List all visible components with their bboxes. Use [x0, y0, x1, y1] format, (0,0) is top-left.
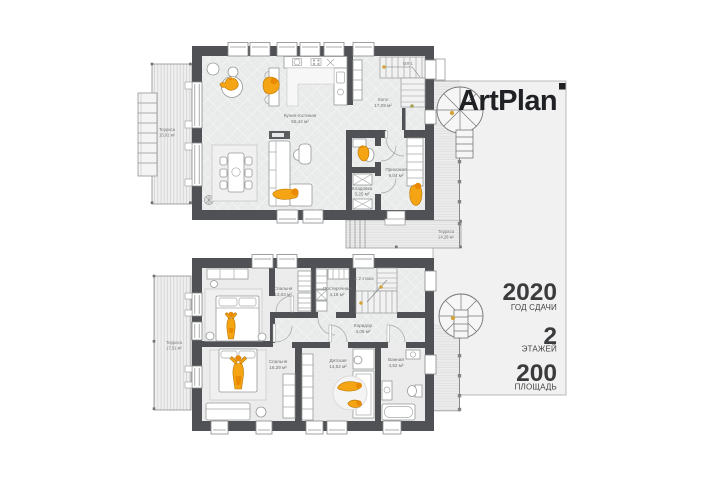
svg-text:ПЛОЩАДЬ: ПЛОЩАДЬ: [515, 383, 557, 392]
svg-text:15,91 м²: 15,91 м²: [159, 133, 176, 138]
svg-text:4,18 м²: 4,18 м²: [330, 292, 345, 297]
svg-text:Кладовка: Кладовка: [352, 186, 373, 191]
svg-text:14,52 м²: 14,52 м²: [329, 364, 347, 369]
svg-text:С 2 этажа: С 2 этажа: [354, 276, 374, 281]
svg-text:Ванная: Ванная: [388, 357, 404, 362]
svg-text:ArtPlan: ArtPlan: [458, 85, 557, 117]
svg-text:17,09 м²: 17,09 м²: [374, 103, 392, 108]
svg-text:16,29 м²: 16,29 м²: [269, 365, 287, 370]
svg-text:17,51 м²: 17,51 м²: [166, 346, 183, 351]
svg-text:4,52 м²: 4,52 м²: [389, 363, 404, 368]
svg-text:3,25 м²: 3,25 м²: [355, 192, 370, 197]
svg-text:Прихожая: Прихожая: [385, 167, 407, 172]
svg-text:Коридор: Коридор: [354, 323, 373, 328]
svg-text:ГОД СДАЧИ: ГОД СДАЧИ: [511, 303, 557, 312]
svg-text:Терраса: Терраса: [166, 340, 183, 345]
svg-text:МЛ-1: МЛ-1: [403, 61, 414, 66]
svg-text:Кухня-гостиная: Кухня-гостиная: [284, 113, 317, 118]
svg-text:55,44 м²: 55,44 м²: [291, 119, 309, 124]
svg-text:2020: 2020: [502, 279, 557, 306]
svg-text:Спальня: Спальня: [269, 359, 288, 364]
svg-text:Терраса: Терраса: [159, 127, 176, 132]
svg-text:Спальня: Спальня: [274, 286, 293, 291]
svg-text:Терраса: Терраса: [438, 229, 455, 234]
svg-text:4,08 м²: 4,08 м²: [356, 329, 371, 334]
svg-text:Холл: Холл: [378, 97, 389, 102]
svg-text:Детская: Детская: [329, 358, 347, 363]
svg-text:9,04 м²: 9,04 м²: [389, 173, 404, 178]
svg-text:14,28 м²: 14,28 м²: [438, 235, 455, 240]
svg-text:Постирочная: Постирочная: [323, 286, 351, 291]
svg-text:ЭТАЖЕЙ: ЭТАЖЕЙ: [522, 345, 557, 354]
